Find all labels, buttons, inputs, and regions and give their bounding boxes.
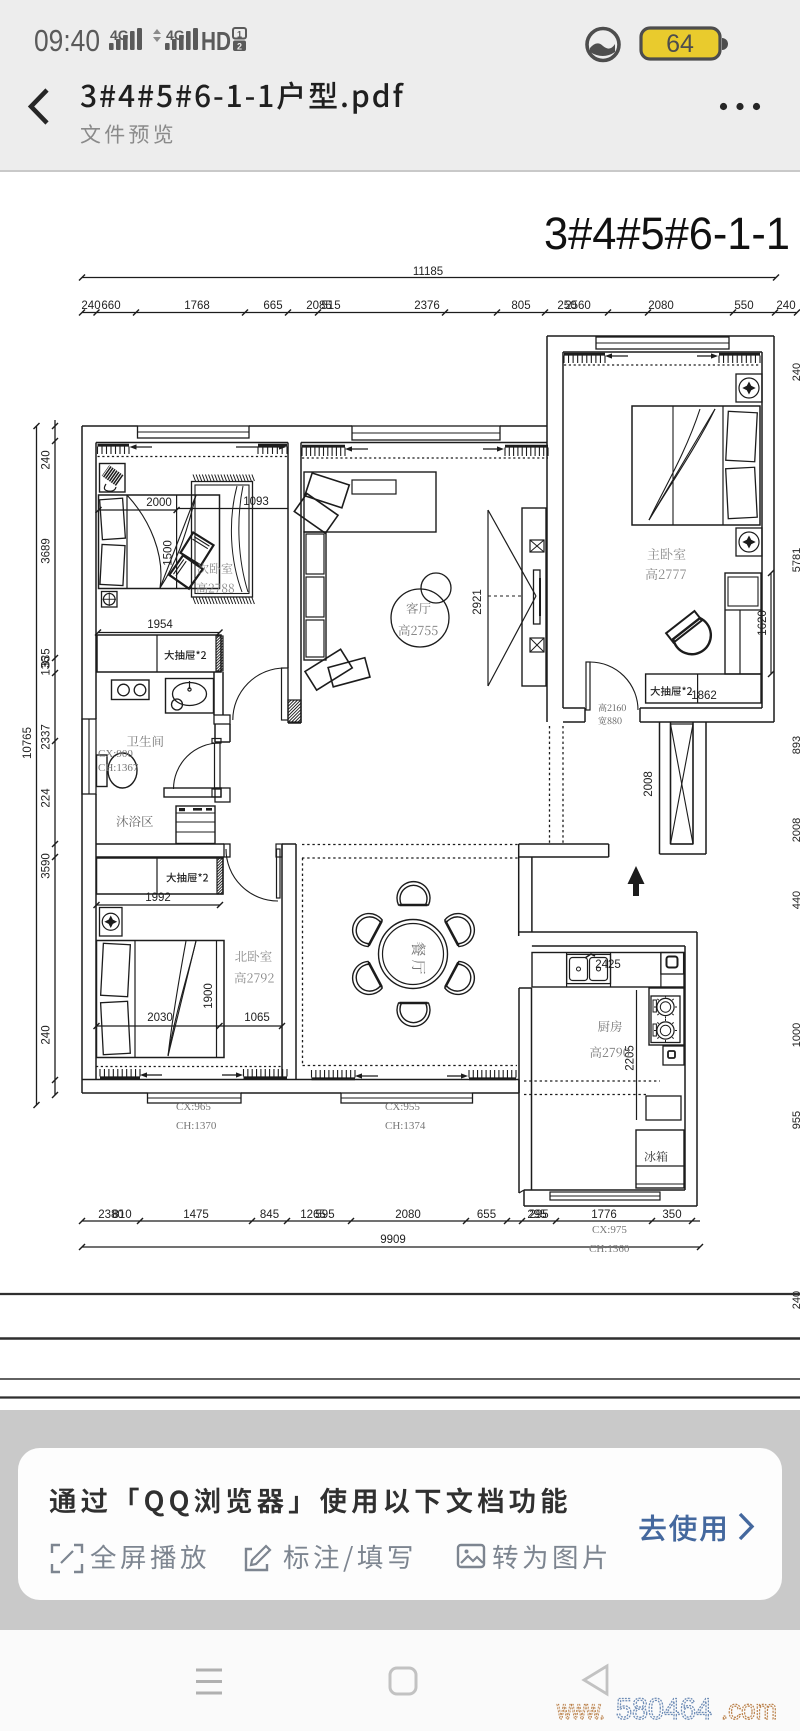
svg-text:2337: 2337 bbox=[41, 724, 53, 750]
svg-text:224: 224 bbox=[41, 788, 53, 808]
svg-text:2008: 2008 bbox=[791, 818, 800, 842]
svg-text:1620: 1620 bbox=[757, 610, 769, 636]
svg-text:136: 136 bbox=[41, 656, 53, 675]
svg-text:3#4#5#6-1-1: 3#4#5#6-1-1 bbox=[544, 208, 790, 259]
svg-text:CH:1367: CH:1367 bbox=[98, 762, 139, 774]
svg-text:1900: 1900 bbox=[203, 983, 215, 1009]
svg-text:550: 550 bbox=[734, 300, 753, 312]
svg-text:2000: 2000 bbox=[146, 497, 172, 509]
svg-text:1862: 1862 bbox=[691, 690, 717, 702]
svg-text:655: 655 bbox=[477, 1209, 496, 1221]
svg-text:2080: 2080 bbox=[395, 1209, 421, 1221]
svg-text:440: 440 bbox=[791, 891, 800, 909]
svg-text:810: 810 bbox=[112, 1209, 131, 1221]
svg-text:845: 845 bbox=[260, 1209, 279, 1221]
svg-text:09:40: 09:40 bbox=[34, 23, 100, 58]
svg-text:955: 955 bbox=[791, 1111, 800, 1129]
svg-text:580464: 580464 bbox=[616, 1693, 712, 1726]
svg-text:295: 295 bbox=[529, 1209, 548, 1221]
svg-text:240: 240 bbox=[41, 1025, 53, 1044]
svg-text:CH:1370: CH:1370 bbox=[176, 1120, 217, 1132]
svg-text:240: 240 bbox=[776, 300, 795, 312]
svg-text:595: 595 bbox=[315, 1209, 334, 1221]
svg-text:CX:965: CX:965 bbox=[176, 1101, 211, 1113]
svg-text:1776: 1776 bbox=[591, 1209, 617, 1221]
svg-text:1954: 1954 bbox=[147, 619, 173, 631]
svg-text:665: 665 bbox=[263, 300, 282, 312]
svg-text:CX:975: CX:975 bbox=[592, 1224, 627, 1236]
svg-text:1093: 1093 bbox=[243, 496, 269, 508]
svg-text:64: 64 bbox=[666, 30, 694, 58]
svg-text:240: 240 bbox=[41, 450, 53, 469]
svg-text:10765: 10765 bbox=[22, 727, 34, 759]
svg-text:350: 350 bbox=[662, 1209, 681, 1221]
svg-text:2425: 2425 bbox=[595, 959, 621, 971]
svg-text:CH:1360: CH:1360 bbox=[589, 1243, 630, 1255]
svg-text:1475: 1475 bbox=[183, 1209, 209, 1221]
svg-text:www.: www. bbox=[556, 1694, 605, 1725]
svg-text:805: 805 bbox=[511, 300, 530, 312]
svg-text:240: 240 bbox=[791, 363, 800, 381]
svg-text:1500: 1500 bbox=[163, 540, 175, 566]
svg-text:2008: 2008 bbox=[643, 771, 655, 797]
svg-text:5781: 5781 bbox=[791, 548, 800, 572]
svg-text:CX:900: CX:900 bbox=[98, 748, 133, 760]
svg-text:CX:955: CX:955 bbox=[385, 1101, 420, 1113]
svg-text:515: 515 bbox=[321, 300, 340, 312]
svg-text:.com: .com bbox=[721, 1694, 777, 1725]
svg-text:2560: 2560 bbox=[565, 300, 591, 312]
svg-text:2: 2 bbox=[237, 42, 242, 52]
svg-text:2376: 2376 bbox=[414, 300, 440, 312]
svg-text:11185: 11185 bbox=[413, 266, 443, 278]
svg-text:CH:1374: CH:1374 bbox=[385, 1120, 426, 1132]
svg-text:2030: 2030 bbox=[147, 1012, 173, 1024]
svg-text:HD: HD bbox=[201, 26, 231, 56]
svg-text:1065: 1065 bbox=[244, 1012, 270, 1024]
svg-text:2205: 2205 bbox=[625, 1045, 637, 1071]
svg-text:1000: 1000 bbox=[791, 1023, 800, 1047]
svg-text:1768: 1768 bbox=[184, 300, 210, 312]
svg-text:2080: 2080 bbox=[648, 300, 674, 312]
svg-text:3689: 3689 bbox=[41, 538, 53, 564]
svg-text:660: 660 bbox=[101, 300, 120, 312]
svg-text:1992: 1992 bbox=[145, 892, 171, 904]
svg-text:1: 1 bbox=[237, 30, 242, 40]
svg-text:893: 893 bbox=[791, 736, 800, 754]
svg-text:9909: 9909 bbox=[380, 1234, 406, 1246]
svg-text:2921: 2921 bbox=[472, 589, 484, 615]
svg-text:3590: 3590 bbox=[41, 853, 53, 879]
